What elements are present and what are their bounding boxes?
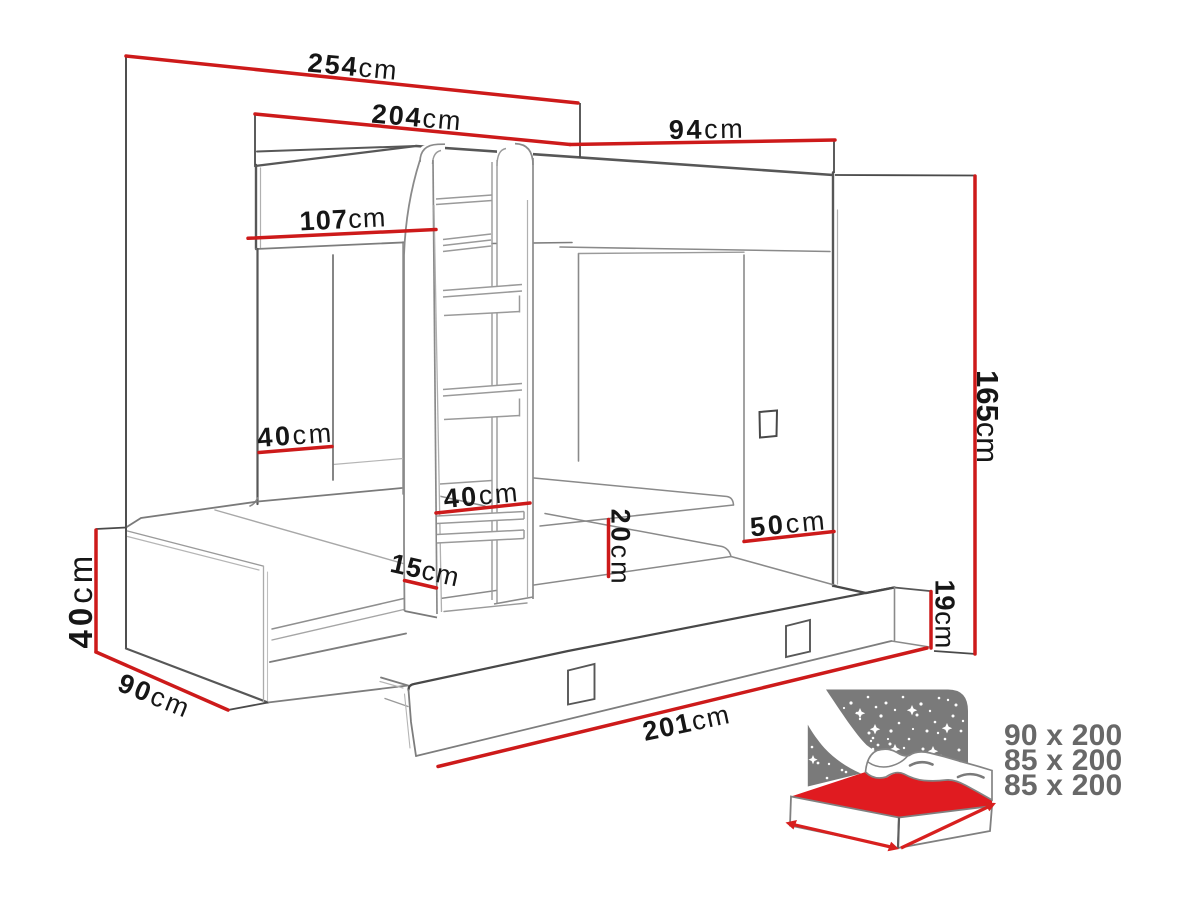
- svg-text:20cm: 20cm: [606, 509, 636, 587]
- svg-text:19cm: 19cm: [930, 580, 961, 649]
- svg-text:107cm: 107cm: [299, 202, 387, 236]
- svg-text:94cm: 94cm: [669, 114, 746, 145]
- svg-text:85 x 200: 85 x 200: [1004, 769, 1122, 802]
- svg-text:40cm: 40cm: [62, 552, 99, 649]
- svg-text:40cm: 40cm: [256, 418, 334, 453]
- svg-text:165cm: 165cm: [970, 370, 1005, 463]
